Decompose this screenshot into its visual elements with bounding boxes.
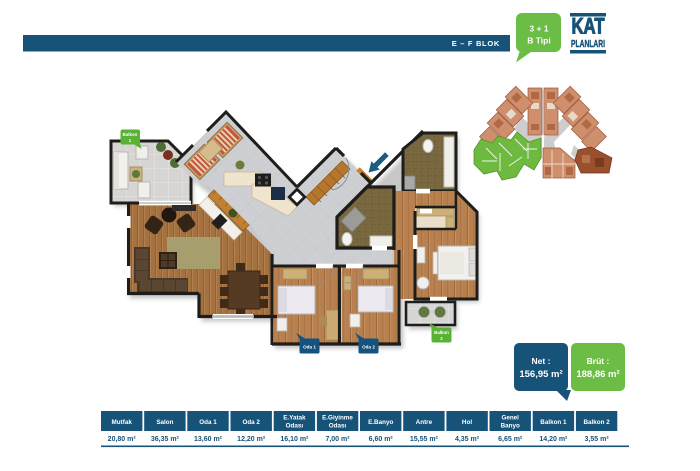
- svg-text:188,86 m²: 188,86 m²: [576, 369, 619, 380]
- svg-text:E – F BLOK: E – F BLOK: [452, 39, 500, 48]
- svg-text:E.Yatak: E.Yatak: [283, 415, 306, 422]
- svg-text:Genel: Genel: [501, 415, 519, 422]
- svg-text:16,10 m²: 16,10 m²: [280, 436, 309, 443]
- svg-text:Oda 1: Oda 1: [303, 345, 316, 350]
- svg-text:Balkon 2: Balkon 2: [583, 419, 610, 426]
- svg-text:14,20 m²: 14,20 m²: [539, 436, 568, 443]
- svg-text:E.Giyinme: E.Giyinme: [322, 415, 353, 422]
- svg-text:Net :: Net :: [532, 356, 551, 366]
- svg-text:Oda 1: Oda 1: [199, 419, 217, 426]
- svg-text:Antre: Antre: [416, 419, 433, 426]
- svg-text:20,80 m²: 20,80 m²: [108, 436, 137, 443]
- svg-text:Brüt :: Brüt :: [587, 356, 610, 366]
- svg-text:Mutfak: Mutfak: [112, 419, 133, 426]
- svg-text:3,55 m²: 3,55 m²: [585, 436, 610, 443]
- svg-text:15,55 m²: 15,55 m²: [410, 436, 439, 443]
- svg-text:E.Banyo: E.Banyo: [368, 419, 393, 426]
- svg-text:13,60 m²: 13,60 m²: [194, 436, 223, 443]
- svg-text:Salon: Salon: [156, 419, 173, 426]
- svg-text:Oda 2: Oda 2: [362, 345, 375, 350]
- svg-text:Balkon 1: Balkon 1: [540, 419, 567, 426]
- svg-text:KAT: KAT: [571, 14, 604, 39]
- svg-text:4,35 m²: 4,35 m²: [455, 436, 480, 443]
- svg-text:Banyo: Banyo: [501, 423, 520, 430]
- svg-text:7,00 m²: 7,00 m²: [325, 436, 350, 443]
- svg-text:Balkon: Balkon: [123, 132, 138, 137]
- svg-text:6,65 m²: 6,65 m²: [498, 436, 523, 443]
- svg-text:Hol: Hol: [462, 419, 472, 426]
- svg-text:12,20 m²: 12,20 m²: [237, 436, 266, 443]
- svg-text:156,95 m²: 156,95 m²: [519, 369, 562, 380]
- svg-text:36,35 m²: 36,35 m²: [151, 436, 180, 443]
- svg-text:Odası: Odası: [286, 423, 304, 430]
- svg-text:Odası: Odası: [329, 423, 347, 430]
- svg-text:6,60 m²: 6,60 m²: [369, 436, 394, 443]
- svg-text:B Tipi: B Tipi: [527, 36, 550, 46]
- svg-text:Balkon: Balkon: [434, 330, 449, 335]
- svg-text:PLANLARI: PLANLARI: [571, 37, 605, 49]
- svg-text:Oda 2: Oda 2: [242, 419, 260, 426]
- svg-text:3 + 1: 3 + 1: [529, 24, 548, 34]
